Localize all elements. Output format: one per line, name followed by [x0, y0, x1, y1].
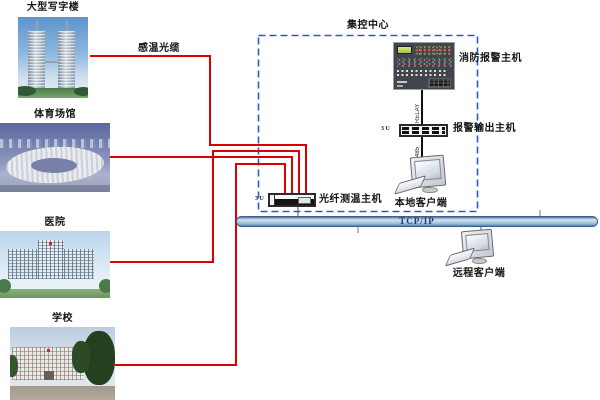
panel-indicator-leds — [397, 58, 452, 67]
hospital-label: 医院 — [0, 217, 110, 228]
office-building-label: 大型写字楼 — [18, 2, 88, 13]
stadium-ground — [0, 185, 110, 192]
panel-text-mark — [397, 81, 407, 83]
alarm-output-host-device — [399, 124, 448, 137]
panel-keypad — [428, 78, 451, 88]
rack-vent-row — [402, 127, 445, 130]
sensing-cable-stadium — [110, 157, 292, 196]
panel-switch-row — [425, 74, 448, 76]
stadium-photo — [0, 123, 110, 192]
system-topology-diagram: 大型写字楼 体育场馆 医院 学校 感温光缆 — [0, 0, 600, 400]
stadium-label: 体育场馆 — [0, 109, 110, 120]
tower-right — [58, 31, 75, 89]
keyboard-icon — [394, 175, 426, 195]
hospital-lawn — [0, 289, 110, 298]
relay-link-label: RELAY — [415, 95, 421, 123]
hospital-tower — [38, 240, 64, 279]
hospital-tree — [99, 279, 110, 293]
panel-text-mark — [397, 85, 403, 87]
device-display — [298, 197, 311, 204]
office-tree — [74, 87, 88, 96]
tcpip-bus: TCP/IP — [236, 216, 598, 227]
tower-left — [28, 31, 45, 89]
panel-switch-row — [425, 70, 448, 72]
panel-lcd-display — [397, 46, 412, 54]
fiber-temp-host-label: 光纤测温主机 — [319, 194, 382, 205]
office-building-photo — [18, 17, 88, 98]
monitor-base — [422, 187, 438, 193]
fire-alarm-host-device — [393, 42, 455, 90]
school-label: 学校 — [10, 313, 115, 324]
panel-switch-row — [397, 74, 422, 76]
school-entrance — [44, 371, 54, 380]
school-photo — [10, 327, 115, 400]
tcpip-bus-label: TCP/IP — [399, 217, 435, 226]
rack-vent-row — [402, 131, 445, 134]
panel-indicator-leds — [415, 46, 452, 55]
skybridge — [45, 61, 58, 63]
remote-client-computer — [444, 228, 504, 270]
school-ground — [10, 386, 115, 400]
school-flag — [47, 349, 50, 352]
sensing-cable-office — [90, 56, 306, 196]
temp-host-size-label: 3 U — [255, 196, 264, 202]
alarm-output-host-size-label: 3 U — [381, 126, 390, 132]
stadium-field — [31, 158, 77, 173]
alarm-output-host-label: 报警输出主机 — [453, 123, 516, 134]
panel-switch-row — [397, 70, 422, 72]
fiber-temp-host-device — [268, 193, 316, 207]
school-tree — [72, 341, 90, 373]
fire-alarm-host-label: 消防报警主机 — [459, 53, 522, 64]
local-client-label: 本地客户端 — [392, 198, 450, 209]
hospital-photo — [0, 231, 110, 298]
device-left-tab — [270, 195, 275, 205]
monitor-base — [472, 258, 487, 264]
sensing-cable-label: 感温光缆 — [138, 43, 180, 54]
hospital-sign — [49, 242, 52, 245]
remote-client-label: 远程客户端 — [446, 268, 512, 279]
keyboard-icon — [445, 247, 475, 266]
control-center-title: 集控中心 — [258, 20, 478, 31]
local-client-computer — [392, 154, 454, 200]
